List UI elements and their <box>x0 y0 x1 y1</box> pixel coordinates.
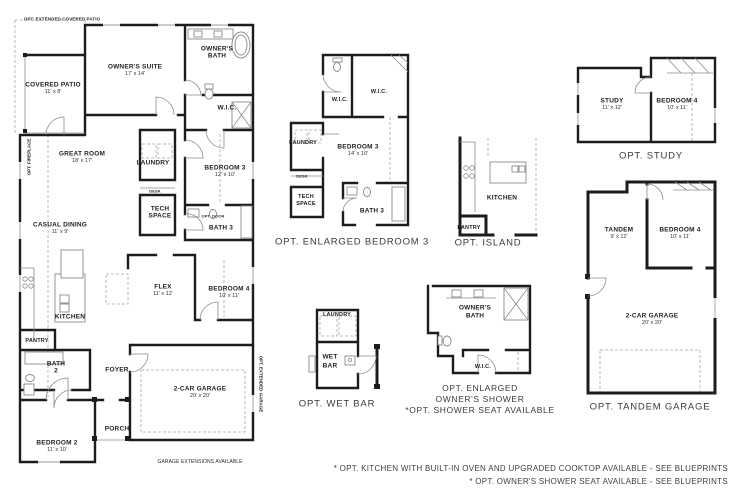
vanity-sink <box>194 31 202 37</box>
opt-br3-wic-left: W.I.C. <box>332 97 348 103</box>
opt-garage-side-note: OPT. EXTENDED GARAGE <box>259 356 264 413</box>
opt-island-sink <box>519 166 525 172</box>
room-foyer: FOYER <box>105 367 128 374</box>
garage-extensions-note: GARAGE EXTENSIONS AVAILABLE <box>157 459 242 465</box>
toilet-tank <box>205 84 213 89</box>
opt-br3-tech-2: SPACE <box>296 201 316 207</box>
opt-br3-bedroom3: BEDROOM 3 <box>337 144 378 151</box>
opt-shower-owners-bath-2: BATH <box>466 313 484 320</box>
opt-tandem-garage: 2-CAR GARAGE <box>626 313 679 320</box>
room-owners-bath-2: BATH <box>208 53 226 60</box>
opt-study-bedroom4: BEDROOM 4 <box>656 98 697 105</box>
cooktop-burner <box>23 284 27 288</box>
room-bedroom2-dim: 11' x 10' <box>47 447 67 453</box>
vanity-sink <box>214 31 222 37</box>
washer-dashed <box>142 144 156 158</box>
room-tech-space: TECH <box>151 206 170 213</box>
opt-study-study-dim: 11' x 12' <box>602 105 622 111</box>
room-laundry: LAUNDRY <box>137 160 170 167</box>
room-bedroom4: BEDROOM 4 <box>208 286 249 293</box>
opt-tandem-bedroom4-dim: 10' x 11' <box>670 234 690 240</box>
patio-porch-outline <box>25 55 175 440</box>
opt-br3-tech: TECH <box>298 194 314 200</box>
room-bedroom3-dim: 12' x 10' <box>215 172 235 178</box>
opt-tandem-garage-door-dashed <box>600 350 700 392</box>
opt-island-counter <box>460 142 475 212</box>
porch-column <box>125 397 130 402</box>
opt-tandem-drawing <box>571 178 749 400</box>
opt-shower-caption-2: OWNER'S SHOWER <box>436 394 525 404</box>
room-casual-dining: CASUAL DINING <box>33 222 87 229</box>
porch-column <box>92 436 97 441</box>
opt-br3-tub <box>392 187 405 221</box>
footnote-shower: * OPT. OWNER'S SHOWER SEAT AVAILABLE - S… <box>300 476 728 489</box>
opt-shower-vanity-sink <box>474 290 483 297</box>
footnotes: * OPT. KITCHEN WITH BUILT-IN OVEN AND UP… <box>300 463 728 488</box>
tub-inner <box>235 35 247 55</box>
opt-island-caption: OPT. ISLAND <box>455 238 522 249</box>
room-garage-dim: 20' x 20' <box>190 393 210 399</box>
opt-fireplace-note: OPT. FIREPLACE <box>27 139 32 176</box>
patio-column <box>23 53 27 57</box>
opt-tandem-tandem-dim: 9' x 12' <box>610 234 627 240</box>
bath2-toilet <box>26 375 35 382</box>
opt-wetbar-walls <box>317 310 358 388</box>
bath3-tub <box>241 206 252 238</box>
opt-tandem-tandem: TANDEM <box>605 227 634 234</box>
opt-study-caption: OPT. STUDY <box>619 151 683 162</box>
footnote-kitchen: * OPT. KITCHEN WITH BUILT-IN OVEN AND UP… <box>300 463 728 476</box>
opt-shower-caption-3: *OPT. SHOWER SEAT AVAILABLE <box>405 405 554 415</box>
room-bedroom2: BEDROOM 2 <box>36 440 77 447</box>
opt-br3-toilet <box>334 63 341 72</box>
opt-door-note: OPT. DOOR <box>202 214 225 219</box>
room-flex-dim: 11' x 12' <box>153 291 173 297</box>
kitchen-appliance-dashed <box>106 274 128 304</box>
opt-tandem-walls <box>588 182 715 393</box>
room-great-room: GREAT ROOM <box>59 151 105 158</box>
opt-br3-bath-vanity <box>347 187 357 195</box>
opt-island-island <box>490 162 526 183</box>
opt-tandem-bedroom4: BEDROOM 4 <box>659 227 700 234</box>
room-bath3: BATH 3 <box>209 225 233 232</box>
room-bath2-2: 2 <box>54 368 58 375</box>
room-bedroom4-dim: 10' x 11' <box>219 293 239 299</box>
porch-column <box>92 397 97 402</box>
garage-door-dashed <box>141 370 245 432</box>
room-covered-patio-dim: 11' x 8' <box>45 89 62 95</box>
room-owners-bath: OWNER'S <box>201 46 233 53</box>
room-casual-dining-dim: 11' x 9' <box>52 229 69 235</box>
opt-study-closet <box>667 58 713 73</box>
opt-wetbar-bar: BAR <box>323 363 338 370</box>
room-flex: FLEX <box>154 284 171 291</box>
room-tech-space-2: SPACE <box>149 213 172 220</box>
island-sink <box>60 304 69 312</box>
room-wic: W.I.C. <box>218 105 237 112</box>
opt-shower-owners-bath: OWNER'S <box>459 305 491 312</box>
opt-wetbar-drawing <box>303 298 403 402</box>
floorplan-sheet: OPT. EXTENDED COVERED PATIO OPT. FIREPLA… <box>0 0 750 500</box>
room-owners-suite: OWNER'S SUITE <box>108 64 162 71</box>
opt-shower-toilet-tank <box>438 336 442 345</box>
opt-br3-bath3: BATH 3 <box>360 208 384 215</box>
room-covered-patio: COVERED PATIO <box>25 82 80 89</box>
toilet <box>205 89 213 99</box>
bath2-sink <box>24 384 34 395</box>
room-bath2: BATH <box>47 361 65 368</box>
porch-column <box>125 436 130 441</box>
opt-br3-fixtures <box>291 55 408 176</box>
room-porch: PORCH <box>105 426 129 433</box>
opt-br3-bedroom3-dim: 14' x 10' <box>348 151 368 157</box>
bath3-vanity <box>188 209 199 217</box>
opt-wetbar-arc <box>358 356 376 374</box>
cooktop-burner <box>29 284 33 288</box>
opt-wetbar-wet: WET <box>322 354 337 361</box>
opt-br3-caption: OPT. ENLARGED BEDROOM 3 <box>275 237 429 248</box>
opt-study-bedroom4-dim: 10' x 11' <box>667 105 687 111</box>
room-great-room-dim: 18' x 17' <box>72 158 92 164</box>
cooktop-burner <box>29 277 33 281</box>
opt-island-sink <box>512 166 518 172</box>
opt-tandem-garage-dim: 20' x 20' <box>642 320 662 326</box>
room-bedroom3: BEDROOM 3 <box>204 165 245 172</box>
opt-wetbar-caption: OPT. WET BAR <box>299 399 375 410</box>
opt-br3-laundry: LAUNDRY <box>289 140 317 146</box>
dining-table <box>61 250 83 278</box>
opt-br3-desk: DESK <box>296 174 308 179</box>
opt-wetbar-cabinet <box>345 356 355 365</box>
desk-label: DESK <box>149 189 161 194</box>
opt-br3-wic-right: W.I.C. <box>371 89 387 95</box>
opt-br3-toilet-tank <box>333 58 342 62</box>
opt-island-walls <box>460 138 536 235</box>
room-kitchen: KITCHEN <box>55 314 85 321</box>
opt-island-kitchen: KITCHEN <box>487 195 517 202</box>
opt-tandem-arcs <box>588 184 663 296</box>
opt-shower-toilet <box>443 336 451 346</box>
cooktop-burner <box>23 277 27 281</box>
patio-column <box>23 129 27 133</box>
opt-shower-vanity-sink <box>452 290 461 297</box>
opt-extended-patio-note: OPT. EXTENDED COVERED PATIO <box>24 17 100 22</box>
opt-wetbar-laundry: LAUNDRY <box>323 312 351 318</box>
opt-shower-wic: W.I.C. <box>475 364 491 370</box>
room-owners-suite-dim: 17' x 14' <box>125 71 145 77</box>
opt-study-arc <box>635 77 651 93</box>
opt-shower-caption-1: OPT. ENLARGED <box>442 383 518 393</box>
opt-tandem-caption: OPT. TANDEM GARAGE <box>590 402 711 413</box>
opt-island-pantry: PANTRY <box>457 225 480 231</box>
opt-br3-bath-toilet <box>364 188 371 197</box>
dryer-dashed <box>158 144 172 158</box>
room-pantry: PANTRY <box>25 338 48 344</box>
room-garage: 2-CAR GARAGE <box>174 386 227 393</box>
opt-island-dashed <box>488 138 536 235</box>
island-sink <box>60 295 69 303</box>
opt-study-study: STUDY <box>600 98 623 105</box>
